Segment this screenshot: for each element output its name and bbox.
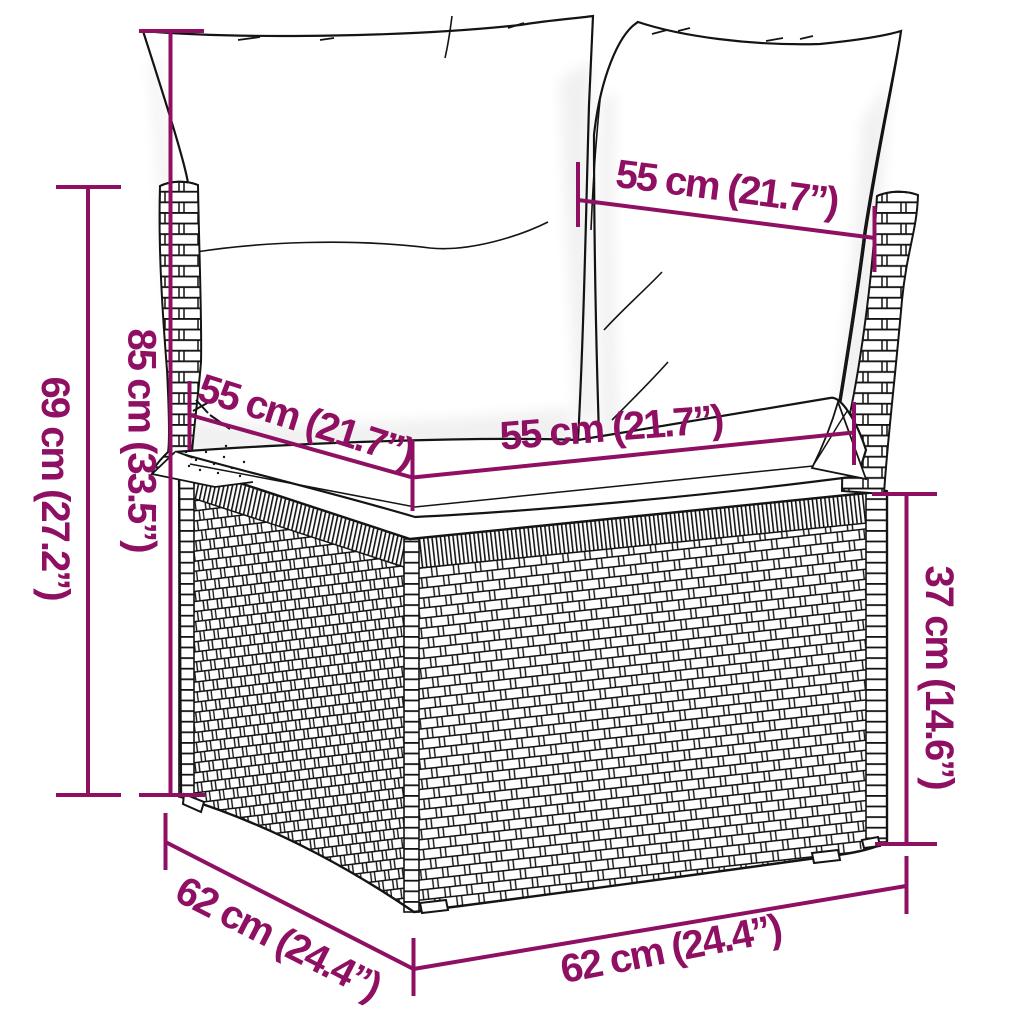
svg-text:85 cm (33.5”): 85 cm (33.5”) (120, 328, 164, 552)
svg-text:37 cm (14.6”): 37 cm (14.6”) (917, 565, 961, 789)
svg-text:69 cm (27.2”): 69 cm (27.2”) (33, 376, 77, 600)
